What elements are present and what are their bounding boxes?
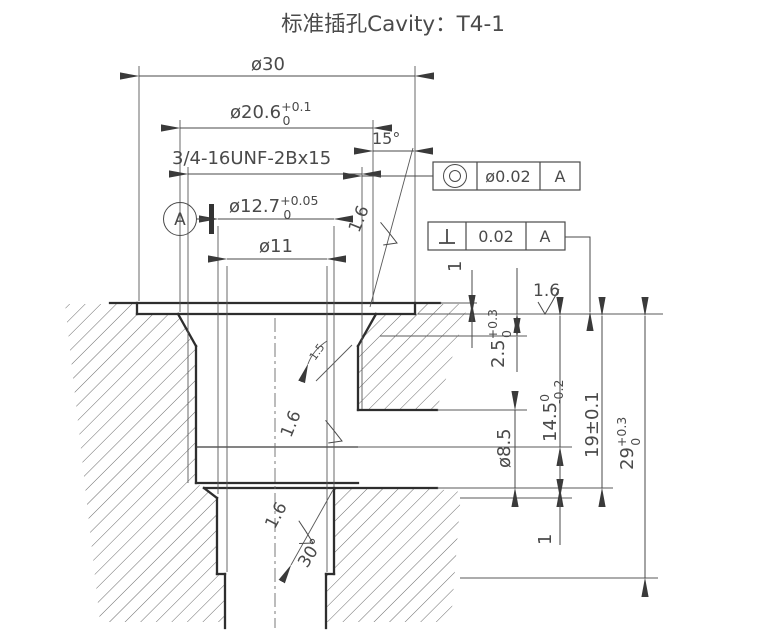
- dimension-depth29: 29+0.30: [614, 316, 645, 578]
- d20-6-label: ø20.6+0.10: [230, 99, 311, 128]
- concentricity-icon: [444, 165, 467, 188]
- finish-thread-label: 1.6: [345, 203, 374, 236]
- d8-5-label: ø8.5: [494, 428, 515, 468]
- section-hatch: [65, 304, 468, 622]
- concentricity-datum: A: [555, 167, 566, 186]
- gdt-frame-concentricity: ø0.02 A: [362, 162, 580, 190]
- thread-start-note: 1.5: [307, 341, 328, 364]
- d30-label: ø30: [251, 54, 285, 75]
- d12-7-label: ø12.7+0.050: [229, 193, 318, 222]
- thread-label: 3/4-16UNF-2Bx15: [172, 148, 331, 169]
- dimension-depth1-bottom: 1: [535, 452, 560, 545]
- finish-recess-label: 1.6: [533, 281, 560, 301]
- dimension-d20-6: ø20.6+0.10: [180, 99, 373, 128]
- hatch-left-block: [65, 304, 225, 622]
- dimension-angle15: 15°: [372, 129, 414, 151]
- dimension-depth2-5: 2.5+0.30: [485, 268, 517, 372]
- d11-label: ø11: [259, 236, 293, 257]
- angle15-label: 15°: [372, 129, 400, 148]
- concentricity-tolerance: ø0.02: [485, 167, 530, 186]
- finish-bore-label: 1.6: [277, 408, 306, 441]
- finish-lower-bore-label: 1.6: [261, 499, 291, 532]
- dimension-depth14-5: 14.50-0.2: [537, 316, 566, 447]
- dimension-d12-7: ø12.7+0.050: [218, 193, 334, 222]
- depth1-top-label: 1: [445, 261, 466, 272]
- page-title: 标准插孔Cavity：T4-1: [281, 12, 505, 37]
- datum-feature-a: A: [164, 203, 215, 236]
- depth19-label: 19±0.1: [582, 391, 603, 458]
- perpendicularity-datum: A: [540, 227, 551, 246]
- drawing-canvas: 标准插孔Cavity：T4-1: [0, 0, 784, 630]
- depth14-5-label: 14.50-0.2: [537, 380, 566, 442]
- dimension-depth19: 19±0.1: [582, 316, 603, 488]
- datum-target-bar: [209, 204, 214, 234]
- chamfer-construction-line: [370, 148, 413, 307]
- depth29-label: 29+0.30: [614, 417, 643, 470]
- dimension-d8-5: ø8.5: [494, 410, 515, 488]
- perpendicularity-icon: [439, 229, 455, 243]
- finish-symbol-recess: 1.6: [533, 281, 560, 314]
- perpendicularity-tolerance: 0.02: [478, 227, 514, 246]
- angle30-label: 30°: [294, 535, 327, 571]
- hatch-right-upper-block: [358, 304, 468, 409]
- finish-symbol-bore: 1.6: [277, 408, 347, 448]
- depth1-bottom-label: 1: [535, 534, 556, 545]
- perpendicularity-leader: [565, 237, 590, 312]
- datum-a-label: A: [174, 210, 186, 230]
- depth2-5-label: 2.5+0.30: [485, 309, 514, 368]
- dimension-d11: ø11: [227, 236, 327, 259]
- technical-drawing: 标准插孔Cavity：T4-1: [0, 0, 784, 630]
- dimension-thread: 3/4-16UNF-2Bx15: [172, 148, 362, 174]
- dimension-d30: ø30: [139, 54, 415, 76]
- hatch-right-lower-block: [326, 489, 461, 622]
